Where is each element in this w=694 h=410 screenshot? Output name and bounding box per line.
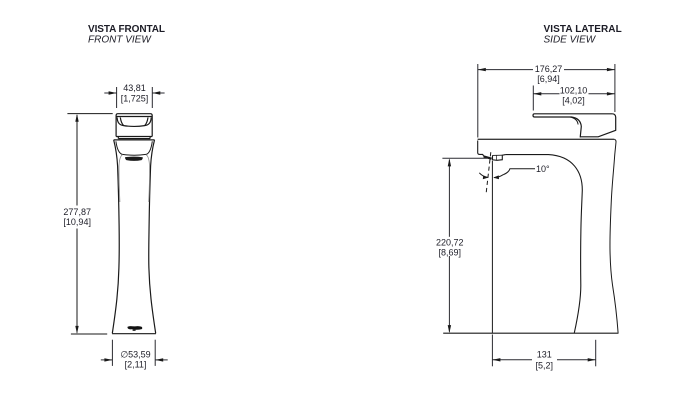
svg-text:131: 131 [537,349,552,359]
svg-text:[2,11]: [2,11] [125,360,147,370]
svg-text:43,81: 43,81 [123,83,146,93]
svg-text:[5,2]: [5,2] [536,360,554,370]
svg-text:[10,94]: [10,94] [63,217,91,227]
svg-text:10°: 10° [536,164,550,174]
svg-text:102,10: 102,10 [560,85,588,95]
svg-text:∅53,59: ∅53,59 [120,349,150,359]
svg-text:VISTA FRONTAL: VISTA FRONTAL [88,24,165,35]
svg-text:FRONT VIEW: FRONT VIEW [88,35,152,46]
svg-text:SIDE VIEW: SIDE VIEW [544,35,597,46]
svg-text:277,87: 277,87 [63,207,91,217]
svg-text:[4,02]: [4,02] [562,95,585,105]
svg-text:176,27: 176,27 [535,64,563,74]
svg-text:VISTA LATERAL: VISTA LATERAL [544,24,622,35]
svg-text:[6,94]: [6,94] [537,74,560,84]
svg-text:220,72: 220,72 [436,237,464,247]
svg-text:[8,69]: [8,69] [439,247,462,257]
svg-text:[1,725]: [1,725] [121,93,149,103]
